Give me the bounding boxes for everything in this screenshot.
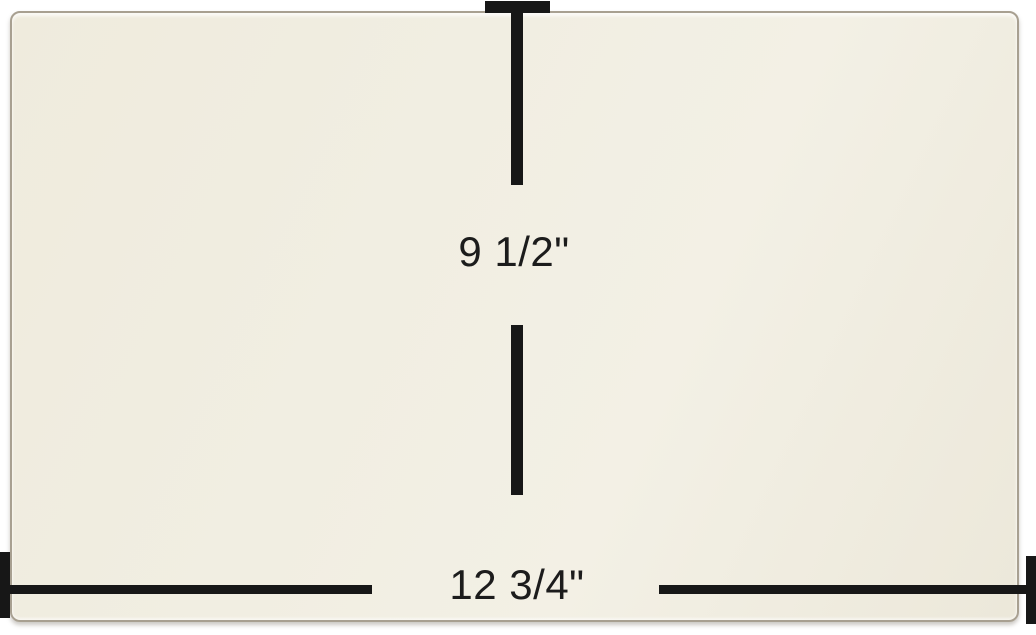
width-dimension-label: 12 3/4": [407, 564, 627, 606]
width-dimension-line-left: [0, 585, 372, 594]
height-dimension-top-tick: [485, 1, 550, 13]
height-dimension-line-lower: [511, 325, 523, 495]
width-dimension-right-tick: [1026, 556, 1036, 624]
product-dimension-image: 9 1/2" 12 3/4": [0, 0, 1036, 635]
width-dimension-line-right: [659, 585, 1027, 594]
height-dimension-line-upper: [511, 13, 523, 185]
height-dimension-label: 9 1/2": [429, 231, 599, 273]
